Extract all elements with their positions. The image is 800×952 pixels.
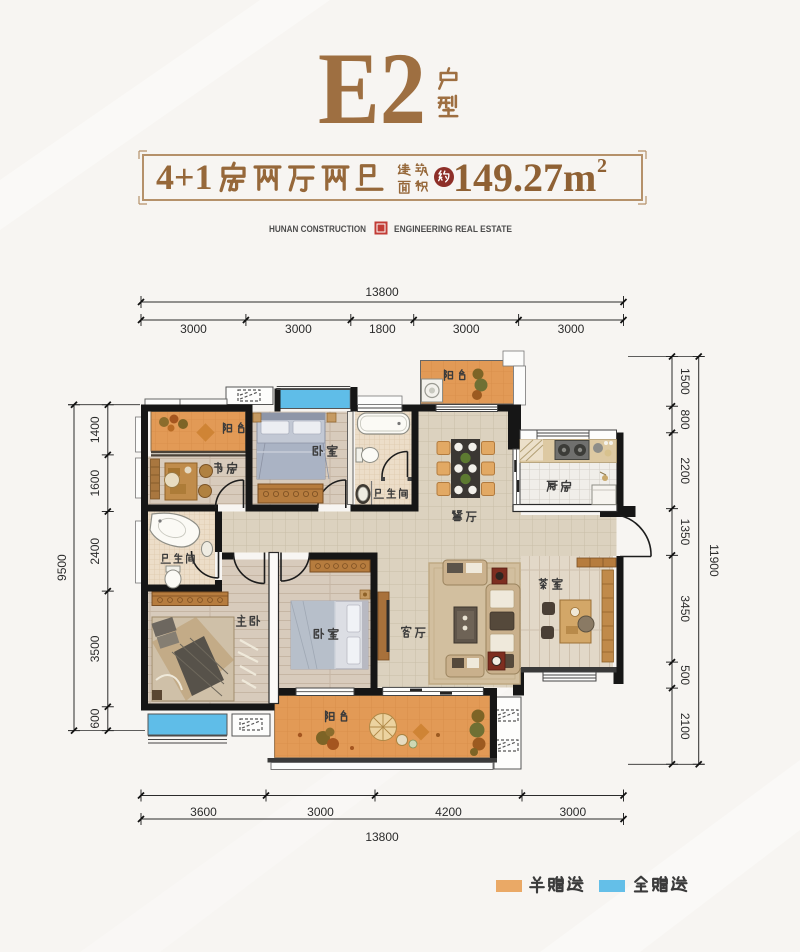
svg-text:4+1: 4+1 (156, 157, 213, 197)
svg-text:1600: 1600 (88, 470, 102, 497)
svg-text:3600: 3600 (190, 805, 217, 819)
svg-text:13800: 13800 (365, 285, 399, 299)
svg-text:3000: 3000 (559, 805, 586, 819)
svg-text:500: 500 (678, 665, 692, 685)
svg-text:3500: 3500 (88, 635, 102, 662)
svg-text:1500: 1500 (678, 368, 692, 395)
svg-text:1800: 1800 (369, 322, 396, 336)
svg-text:800: 800 (678, 409, 692, 429)
svg-text:2400: 2400 (88, 538, 102, 565)
svg-text:1350: 1350 (678, 519, 692, 546)
svg-text:11900: 11900 (707, 544, 721, 577)
svg-text:4200: 4200 (435, 805, 462, 819)
svg-text:3000: 3000 (180, 322, 207, 336)
svg-text:600: 600 (88, 708, 102, 728)
svg-text:ENGINEERING REAL ESTATE: ENGINEERING REAL ESTATE (394, 224, 512, 235)
svg-text:2100: 2100 (678, 713, 692, 740)
svg-text:149.27m: 149.27m (453, 155, 596, 200)
svg-text:1400: 1400 (88, 416, 102, 443)
svg-text:HUNAN CONSTRUCTION: HUNAN CONSTRUCTION (269, 224, 366, 235)
svg-text:2200: 2200 (678, 457, 692, 484)
svg-text:2: 2 (597, 155, 607, 177)
svg-text:9500: 9500 (55, 554, 69, 581)
svg-text:13800: 13800 (365, 830, 399, 844)
svg-text:3000: 3000 (285, 322, 312, 336)
svg-text:3000: 3000 (453, 322, 480, 336)
svg-text:E2: E2 (318, 32, 426, 146)
svg-text:3000: 3000 (558, 322, 585, 336)
svg-text:3450: 3450 (678, 595, 692, 622)
svg-text:3000: 3000 (307, 805, 334, 819)
